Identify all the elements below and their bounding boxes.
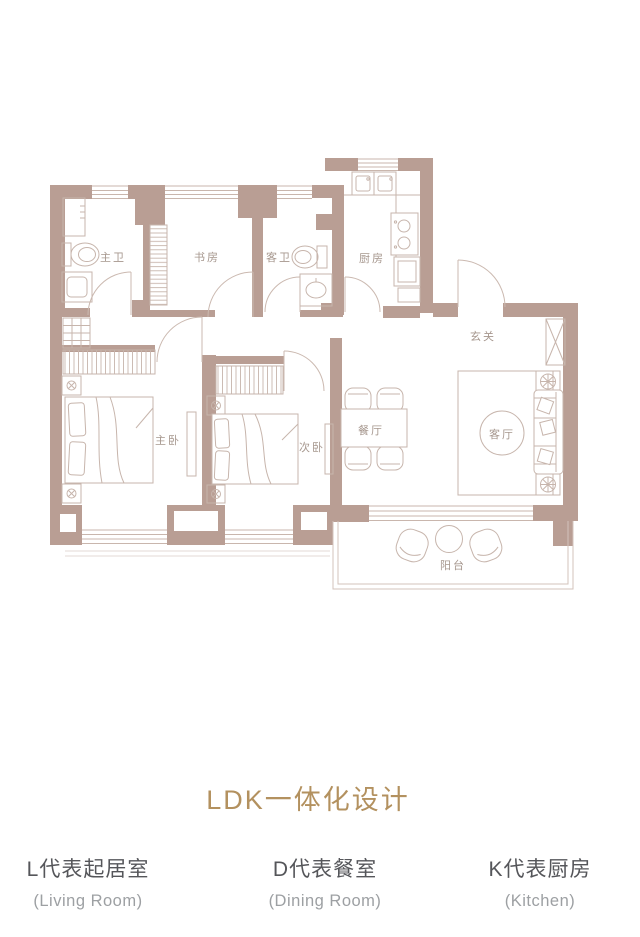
window-guest-bath [277,186,312,199]
dining-chair [345,388,371,412]
window-second-bedroom [225,530,293,544]
floor-plan: 主卫 书房 客卫 厨房 玄关 主卧 次卧 餐厅 客厅 阳台 [0,0,640,660]
window-sill-lines [65,551,330,556]
dining-chair [377,388,403,412]
bed-master [65,397,153,483]
legend-en-dining: (Dining Room) [238,892,412,911]
plant-stand [536,371,560,392]
window-master-bath [92,186,128,199]
kitchen-appliance [398,288,420,302]
sofa [534,390,563,474]
room-label-study: 书房 [194,251,220,264]
door-master-bath [88,272,131,315]
entry-cabinet [546,319,565,365]
plant-stand [536,474,560,495]
balcony-rail [333,521,573,589]
room-label-kitchen: 厨房 [359,252,385,265]
stove [391,213,418,255]
floor-plan-svg: 主卫 书房 客卫 厨房 玄关 主卧 次卧 餐厅 客厅 阳台 [0,0,640,660]
shoe-cabinet [63,318,90,348]
legend-item-living: L代表起居室 (Living Room) [6,853,170,911]
door-entry [458,260,505,307]
room-label-balcony: 阳台 [440,558,466,572]
legend-cn-dining: D代表餐室 [238,853,412,883]
window-balcony-slider [369,506,533,521]
toilet-guest [292,246,327,268]
window-kitchen [358,159,398,171]
wardrobe-second [216,366,283,394]
wardrobe-master [63,350,155,374]
room-label-foyer: 玄关 [470,329,496,343]
window-master-bedroom [82,530,167,544]
balcony-chair [393,526,432,565]
balcony-chair [466,526,505,565]
room-label-master-bedroom: 主卧 [155,434,181,447]
page-title: LDK一体化设计 [0,778,616,817]
balcony-table [436,526,463,553]
vanity-guest-bath [300,274,332,306]
room-label-living-room: 客厅 [489,427,515,441]
room-label-master-bath: 主卫 [100,251,126,264]
bed-second [212,414,298,484]
bookshelf [150,225,167,305]
window-study [165,186,238,199]
door-kitchen [345,277,380,312]
dining-chair [377,446,403,470]
legend-item-dining: D代表餐室 (Dining Room) [238,853,412,911]
kitchen-sink [352,172,396,195]
toilet-master [62,243,99,266]
room-label-second-bedroom: 次卧 [299,440,325,454]
dresser-master [187,412,196,476]
door-master-bedroom [157,317,202,362]
door-second-bedroom [284,351,324,391]
room-label-guest-bath: 客卫 [266,250,292,264]
legend-cn-living: L代表起居室 [6,853,170,883]
legend-en-living: (Living Room) [6,892,170,911]
shower-cabinet [63,198,85,236]
sink-master-bath [62,272,92,302]
kitchen-cabinet [394,257,420,286]
legend-en-kitchen: (Kitchen) [458,892,622,911]
legend-cn-kitchen: K代表厨房 [458,853,622,883]
dining-chair [345,446,371,470]
nightstand [62,484,81,503]
door-guest-bath [265,277,300,312]
nightstand [62,376,81,395]
legend-item-kitchen: K代表厨房 (Kitchen) [458,853,622,911]
room-label-dining-room: 餐厅 [358,423,384,437]
